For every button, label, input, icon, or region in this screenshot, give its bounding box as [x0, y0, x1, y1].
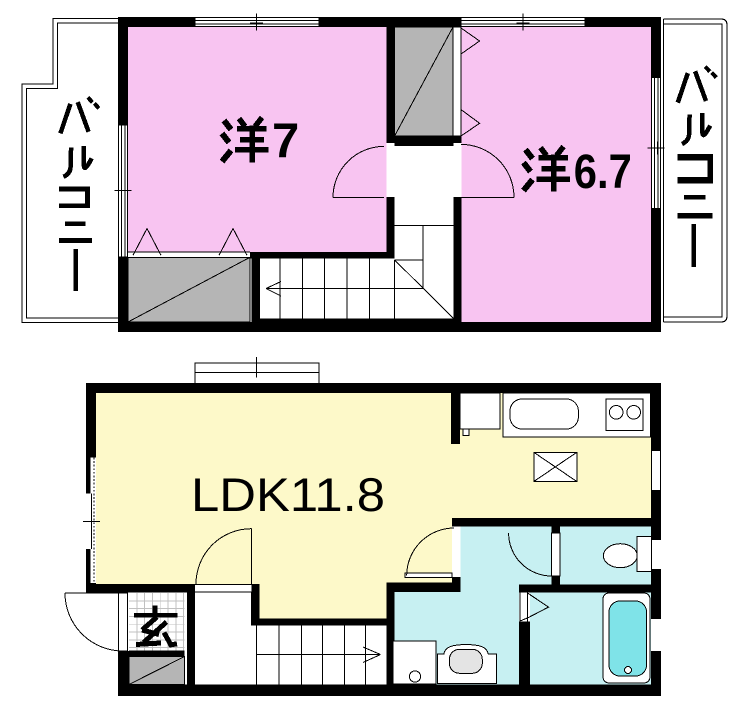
svg-text:7: 7 — [272, 115, 299, 169]
svg-text:6.7: 6.7 — [574, 146, 632, 199]
svg-text:LDK11.8: LDK11.8 — [191, 468, 385, 521]
